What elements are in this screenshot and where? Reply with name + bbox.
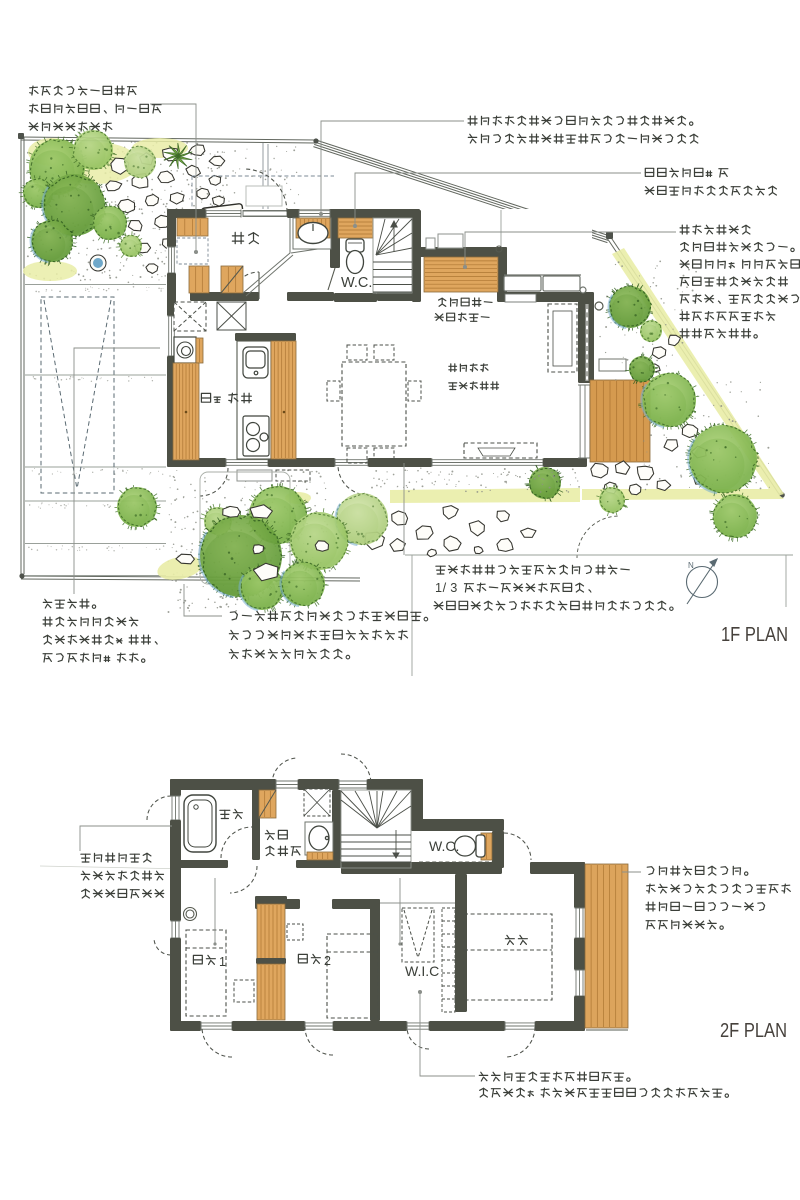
svg-text:2: 2 (324, 954, 331, 968)
svg-text:W.C.: W.C. (429, 838, 459, 854)
svg-text:3: 3 (450, 581, 457, 595)
svg-text:/: / (443, 581, 447, 595)
svg-text:1: 1 (219, 955, 226, 969)
svg-text:1F PLAN: 1F PLAN (721, 624, 788, 646)
svg-text:N: N (688, 561, 694, 570)
svg-text:W.I.C: W.I.C (405, 963, 439, 979)
svg-text:1: 1 (435, 581, 442, 595)
svg-text:2F PLAN: 2F PLAN (720, 1020, 787, 1042)
svg-text:W.C.: W.C. (341, 275, 372, 291)
